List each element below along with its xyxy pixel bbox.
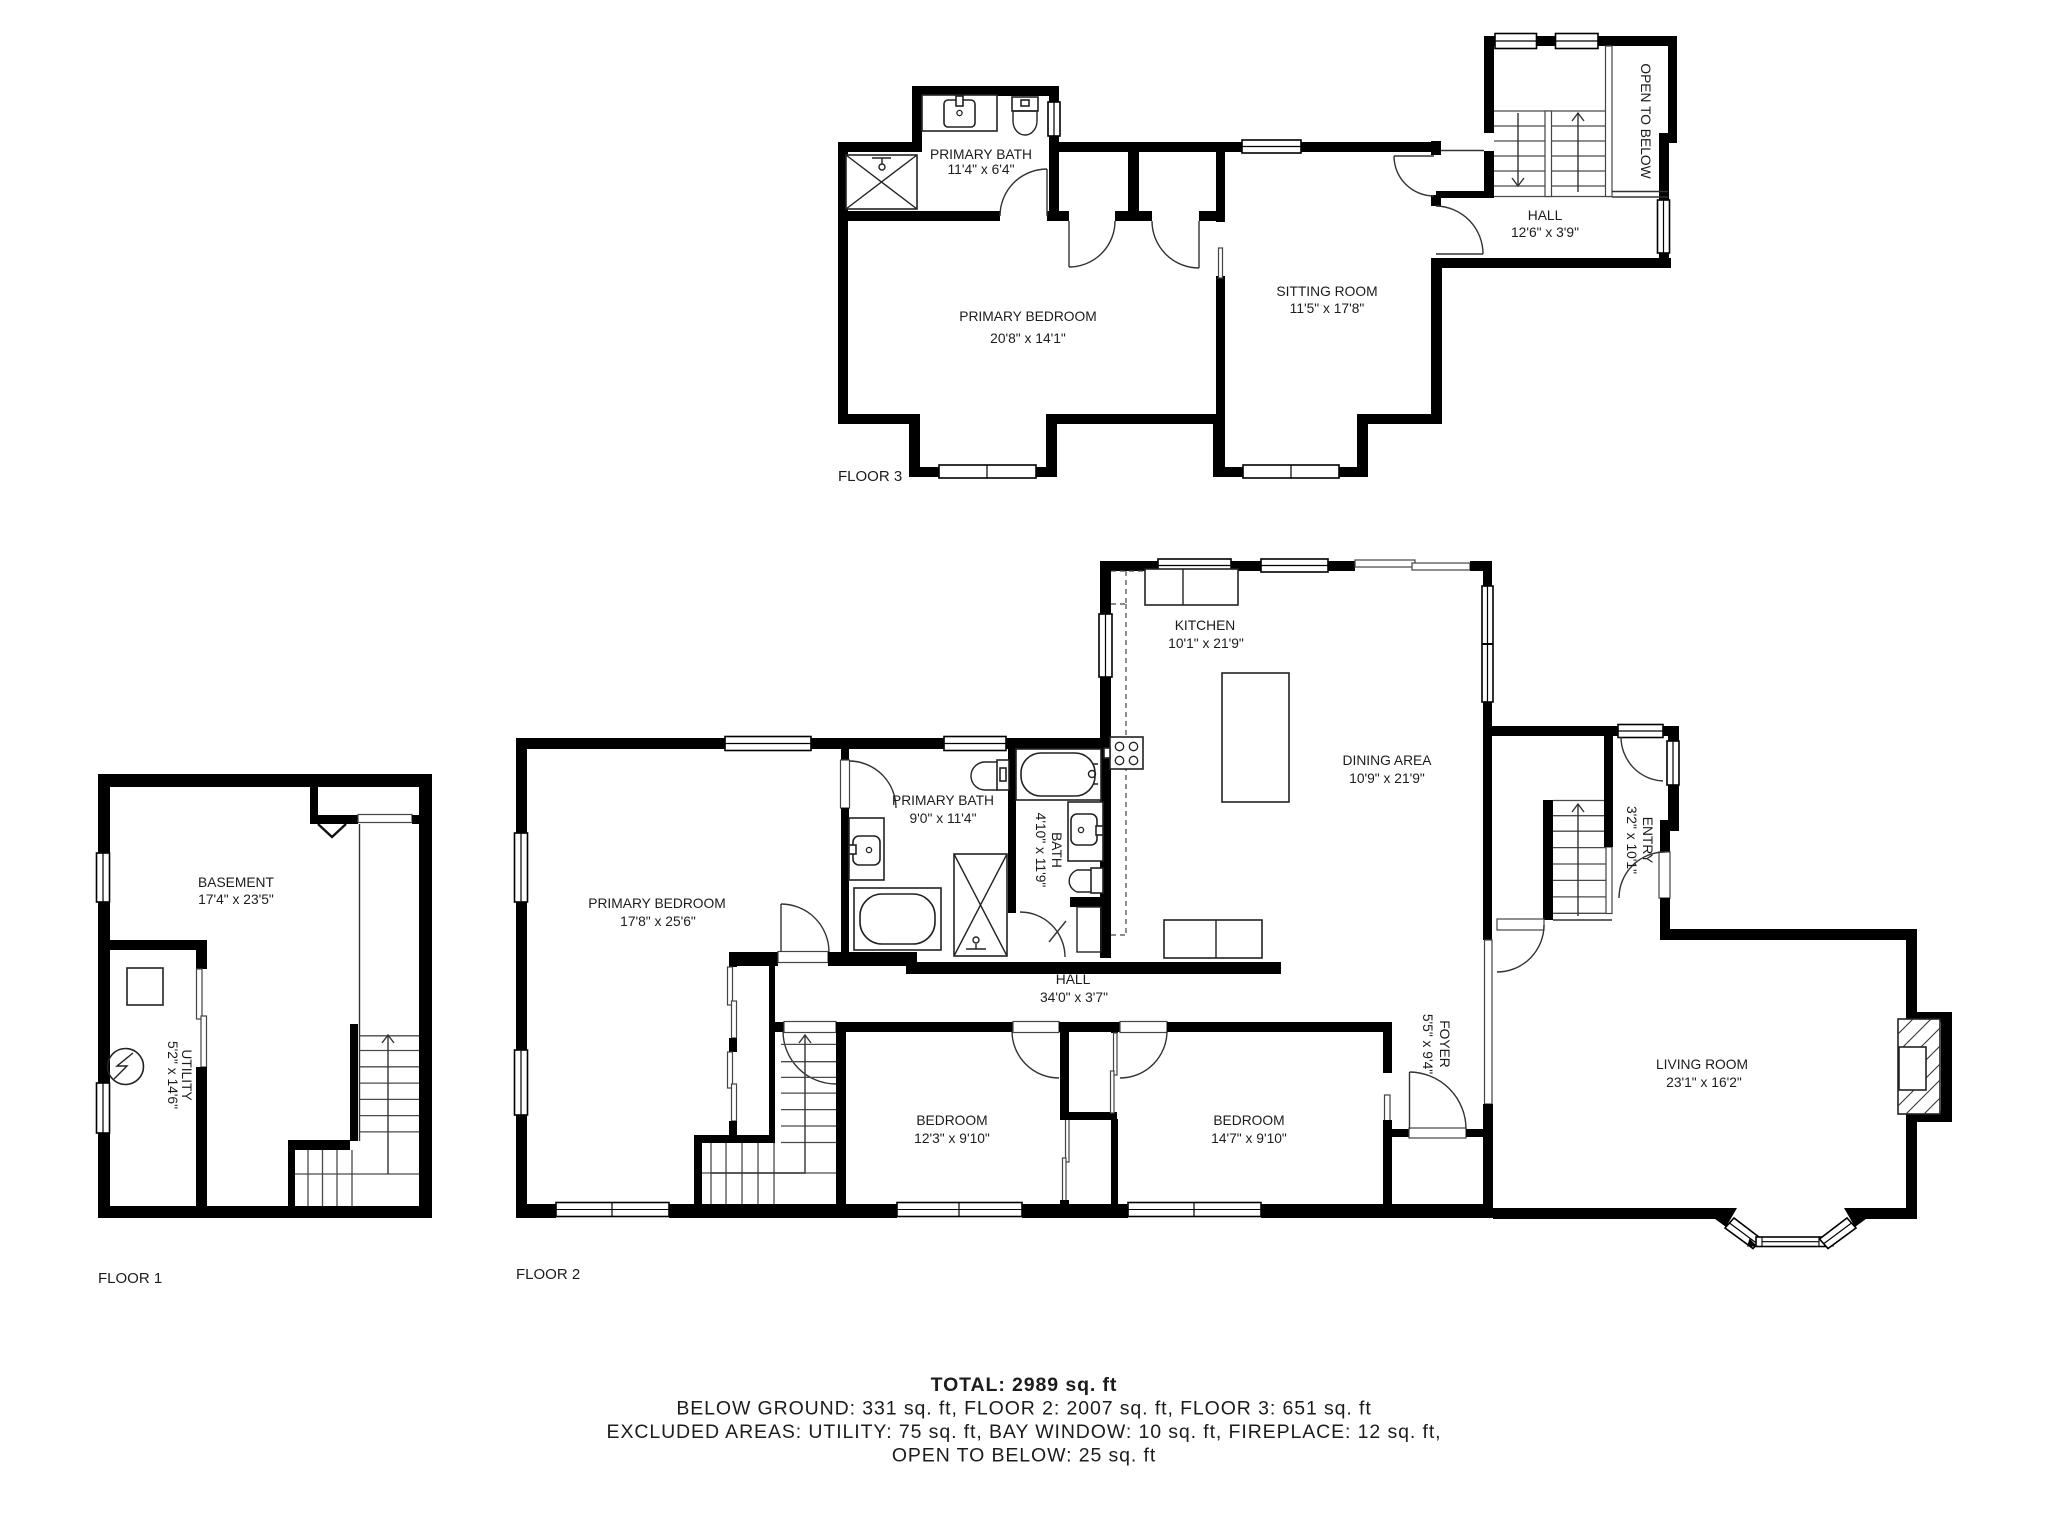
svg-text:11'4" x 6'4": 11'4" x 6'4" (948, 162, 1015, 177)
svg-text:5'2" x 14'6": 5'2" x 14'6" (165, 1041, 180, 1109)
svg-text:KITCHEN: KITCHEN (1175, 618, 1236, 633)
svg-text:23'1" x 16'2": 23'1" x 16'2" (1666, 1075, 1742, 1090)
svg-text:12'6" x 3'9": 12'6" x 3'9" (1511, 225, 1579, 240)
svg-text:BEDROOM: BEDROOM (916, 1113, 987, 1128)
svg-text:BASEMENT: BASEMENT (198, 875, 274, 890)
svg-text:LIVING ROOM: LIVING ROOM (1656, 1057, 1748, 1072)
svg-text:12'3" x 9'10": 12'3" x 9'10" (914, 1131, 990, 1146)
svg-text:BEDROOM: BEDROOM (1213, 1113, 1284, 1128)
svg-text:SITTING ROOM: SITTING ROOM (1276, 284, 1377, 299)
svg-text:17'8" x 25'6": 17'8" x 25'6" (620, 914, 696, 929)
svg-text:4'10" x 11'9": 4'10" x 11'9" (1033, 813, 1048, 888)
svg-text:PRIMARY BATH: PRIMARY BATH (930, 147, 1032, 162)
svg-text:OPEN TO BELOW: OPEN TO BELOW (1638, 63, 1653, 178)
svg-text:14'7" x 9'10": 14'7" x 9'10" (1211, 1131, 1287, 1146)
svg-text:TOTAL: 2989 sq. ft: TOTAL: 2989 sq. ft (931, 1374, 1118, 1396)
svg-text:UTILITY: UTILITY (179, 1049, 194, 1100)
svg-text:PRIMARY BEDROOM: PRIMARY BEDROOM (588, 896, 725, 911)
svg-text:EXCLUDED AREAS: UTILITY: 75 sq: EXCLUDED AREAS: UTILITY: 75 sq. ft, BAY … (607, 1421, 1442, 1443)
svg-text:3'2" x 10'1": 3'2" x 10'1" (1624, 806, 1639, 874)
svg-text:20'8" x 14'1": 20'8" x 14'1" (990, 331, 1066, 346)
svg-text:10'1" x 21'9": 10'1" x 21'9" (1168, 636, 1244, 651)
svg-text:PRIMARY BATH: PRIMARY BATH (892, 793, 994, 808)
svg-text:BELOW GROUND: 331 sq. ft, FLOO: BELOW GROUND: 331 sq. ft, FLOOR 2: 2007 … (676, 1398, 1371, 1420)
svg-text:PRIMARY BEDROOM: PRIMARY BEDROOM (959, 309, 1096, 324)
svg-text:10'9" x 21'9": 10'9" x 21'9" (1349, 771, 1425, 786)
svg-text:5'5" x 9'4": 5'5" x 9'4" (1420, 1014, 1435, 1074)
svg-text:OPEN TO BELOW: 25 sq. ft: OPEN TO BELOW: 25 sq. ft (892, 1445, 1156, 1467)
svg-text:17'4" x 23'5": 17'4" x 23'5" (198, 892, 274, 907)
svg-text:ENTRY: ENTRY (1640, 817, 1655, 864)
svg-text:34'0" x 3'7": 34'0" x 3'7" (1040, 990, 1108, 1005)
svg-text:FLOOR 1: FLOOR 1 (98, 1270, 162, 1287)
svg-text:DINING AREA: DINING AREA (1343, 753, 1433, 768)
svg-text:HALL: HALL (1528, 208, 1563, 223)
svg-text:9'0" x 11'4": 9'0" x 11'4" (910, 811, 977, 826)
svg-text:HALL: HALL (1056, 972, 1091, 987)
svg-text:FLOOR 3: FLOOR 3 (838, 468, 902, 485)
svg-text:FLOOR 2: FLOOR 2 (516, 1266, 580, 1283)
svg-text:FOYER: FOYER (1437, 1020, 1452, 1068)
svg-text:11'5" x 17'8": 11'5" x 17'8" (1290, 301, 1365, 316)
svg-text:BATH: BATH (1049, 832, 1064, 868)
